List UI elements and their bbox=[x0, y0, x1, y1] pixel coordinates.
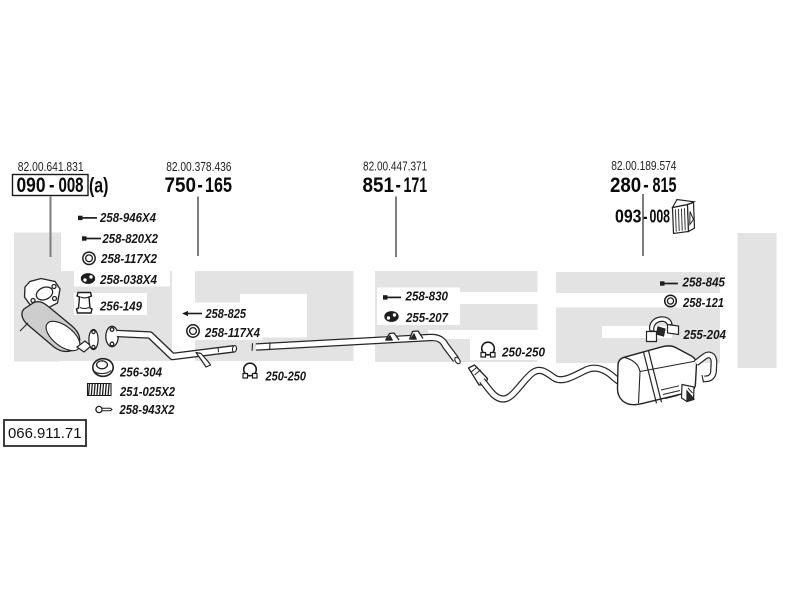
svg-text:008: 008 bbox=[59, 174, 84, 197]
svg-text:250-250: 250-250 bbox=[501, 345, 546, 360]
svg-text:258-946X4: 258-946X4 bbox=[99, 210, 157, 225]
svg-text:258-830: 258-830 bbox=[405, 289, 449, 304]
svg-text:258-943X2: 258-943X2 bbox=[119, 402, 176, 417]
svg-text:851: 851 bbox=[363, 174, 395, 197]
svg-text:-: - bbox=[396, 174, 401, 197]
svg-text:82.00.378.436: 82.00.378.436 bbox=[166, 160, 231, 174]
svg-text:258-117X4: 258-117X4 bbox=[204, 325, 261, 340]
svg-text:258-845: 258-845 bbox=[682, 275, 726, 290]
svg-text:255-207: 255-207 bbox=[405, 310, 449, 325]
svg-text:250-250: 250-250 bbox=[265, 368, 307, 383]
svg-text:280: 280 bbox=[610, 174, 641, 197]
svg-text:093: 093 bbox=[615, 206, 642, 227]
svg-text:-: - bbox=[49, 174, 55, 197]
svg-text:258-038X4: 258-038X4 bbox=[99, 272, 158, 287]
svg-text:815: 815 bbox=[653, 174, 677, 197]
svg-text:256-304: 256-304 bbox=[119, 365, 163, 380]
svg-text:82.00.641.831: 82.00.641.831 bbox=[18, 160, 84, 174]
svg-text:82.00.447.371: 82.00.447.371 bbox=[363, 160, 427, 174]
svg-text:171: 171 bbox=[404, 174, 428, 197]
svg-text:090: 090 bbox=[17, 174, 46, 197]
svg-text:066.911.71: 066.911.71 bbox=[8, 425, 82, 442]
svg-text:258-121: 258-121 bbox=[682, 295, 724, 310]
svg-text:(a): (a) bbox=[89, 175, 109, 198]
svg-text:258-825: 258-825 bbox=[205, 306, 247, 321]
svg-text:-: - bbox=[643, 174, 648, 197]
svg-text:258-117X2: 258-117X2 bbox=[100, 251, 158, 266]
svg-text:750: 750 bbox=[165, 174, 197, 197]
svg-text:82.00.189.574: 82.00.189.574 bbox=[611, 159, 676, 173]
svg-text:-: - bbox=[643, 206, 648, 227]
svg-text:256-149: 256-149 bbox=[99, 299, 143, 314]
svg-text:251-025X2: 251-025X2 bbox=[119, 384, 176, 399]
svg-text:008: 008 bbox=[650, 206, 671, 227]
svg-text:255-204: 255-204 bbox=[683, 327, 727, 342]
svg-text:258-820X2: 258-820X2 bbox=[102, 231, 159, 246]
svg-text:-: - bbox=[197, 174, 202, 197]
svg-text:165: 165 bbox=[205, 174, 232, 197]
